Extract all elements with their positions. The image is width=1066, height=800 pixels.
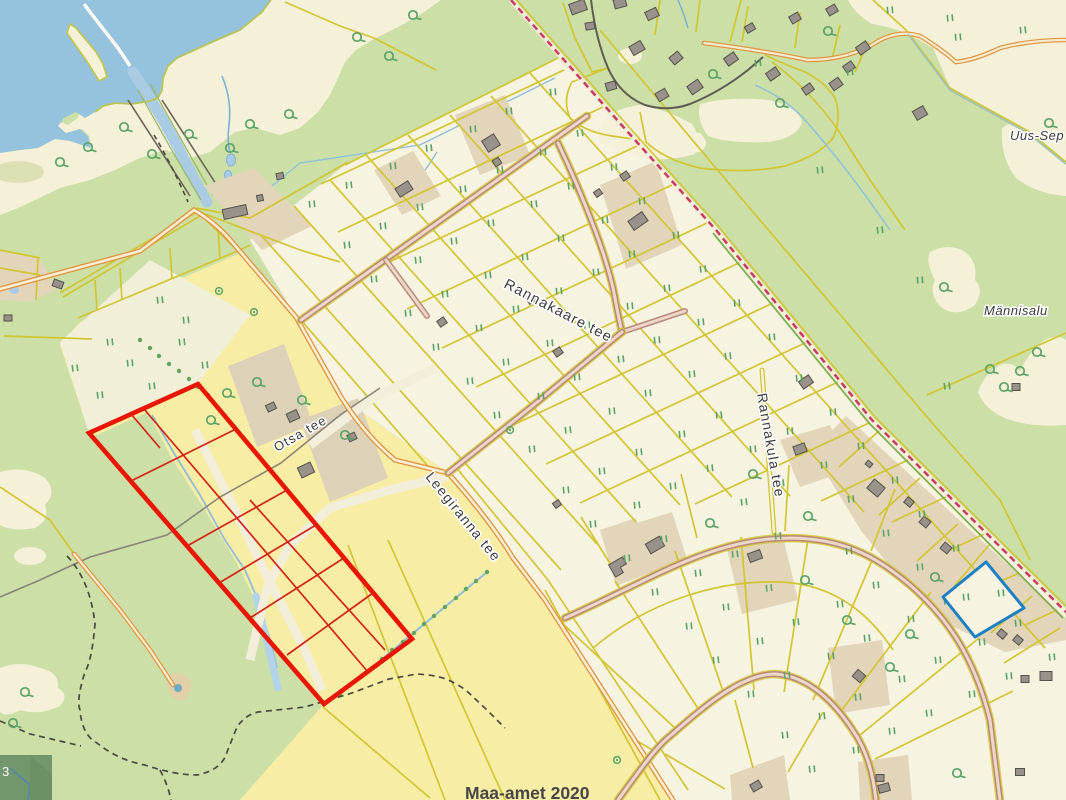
svg-text:Maa-amet 2020: Maa-amet 2020 xyxy=(465,783,590,800)
svg-text:Männisalu: Männisalu xyxy=(984,303,1048,318)
svg-text:Uus-Sep: Uus-Sep xyxy=(1010,128,1064,143)
svg-text:3: 3 xyxy=(2,764,9,779)
